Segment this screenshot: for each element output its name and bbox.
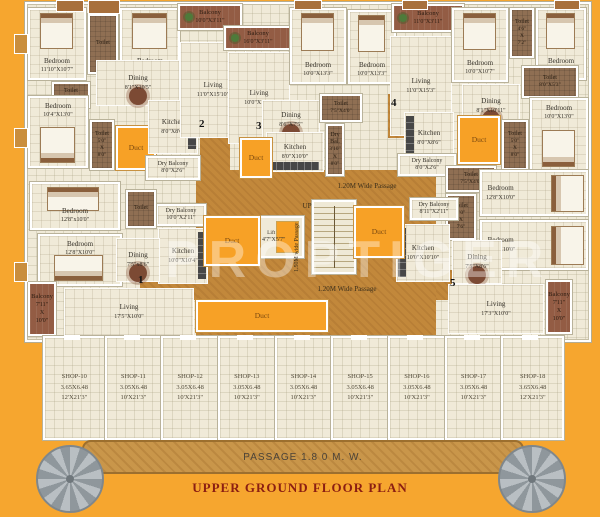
balcony-sw-label: Balcony7'11"X10'0" bbox=[31, 293, 53, 325]
bedroom-ne-3-label: Bedroom10'0"X13'0" bbox=[544, 104, 573, 121]
shop-size-metric: 3.05X6.48 bbox=[346, 383, 373, 393]
shop-size-imperial: 10'X21'3" bbox=[461, 393, 487, 403]
shop-label: SHOP-11 bbox=[121, 372, 146, 382]
duct-core-right: Duct bbox=[354, 206, 404, 258]
toilet-se-1-label: Toilet7'5"X4'0" bbox=[460, 172, 481, 186]
duct-ne: Duct bbox=[458, 116, 500, 164]
drybalcony-se: Dry Balcony8'11"X2'11" bbox=[410, 198, 458, 220]
toilet-ne-2: Toilet8'0"X5'3" bbox=[522, 66, 578, 98]
staircase bbox=[312, 200, 356, 274]
tree-icon bbox=[36, 445, 104, 513]
wall-stub bbox=[402, 0, 428, 10]
ac-ledge bbox=[14, 262, 28, 282]
toilet-ne-1-label: Toilet4'6"X7'2" bbox=[515, 19, 529, 47]
bedroom-se-1: Bedroom12'8"X10'0" bbox=[480, 170, 588, 216]
bedroom-sw-2-label: Bedroom12'8"X10'0" bbox=[65, 240, 94, 257]
shop-size-imperial: 10'X21'3" bbox=[404, 393, 430, 403]
toilet-ne-3-label: Toilet5'0"X8'0" bbox=[508, 131, 522, 159]
bedroom-ne-1: Bedroom10'0"X10'7" bbox=[452, 8, 508, 82]
bedroom-c-1: Bedroom10'0"X13'3" bbox=[290, 8, 346, 84]
dining-c-label: Dining8'6"X7'5" bbox=[279, 111, 302, 128]
shop-size-imperial: 10'X21'3" bbox=[120, 393, 146, 403]
kitchen-c-label: Kitchen8'0"X10'0" bbox=[282, 143, 308, 160]
shop-size-metric: 3.05X6.48 bbox=[233, 383, 260, 393]
toilet-ne-3: Toilet5'0"X8'0" bbox=[502, 120, 528, 170]
shop-label: SHOP-14 bbox=[291, 372, 316, 382]
shop-size-imperial: 10'X21'3" bbox=[291, 393, 317, 403]
kitchen-ne-label: Kitchen8'0"X8'6" bbox=[417, 129, 440, 146]
dining-nw-label: Dining8'1"X10'5" bbox=[125, 74, 151, 91]
bedroom-ne-3: Bedroom10'0"X13'0" bbox=[530, 98, 588, 172]
unit-marker-2: 2 bbox=[199, 118, 205, 130]
bedroom-se-1-label: Bedroom12'8"X10'0" bbox=[486, 184, 515, 201]
bed-icon bbox=[463, 13, 495, 50]
shop-size-metric: 3.05X6.48 bbox=[176, 383, 203, 393]
duct-core-left: Duct bbox=[204, 216, 260, 266]
kitchen-sw-label: Kitchen10'0"X10'4" bbox=[168, 247, 197, 264]
living-sw: Living17'5"X10'0" bbox=[64, 288, 194, 336]
bedroom-nw-3: Bedroom10'4"X13'0" bbox=[28, 96, 88, 168]
bedroom-c-2-label: Bedroom10'0"X13'3" bbox=[357, 61, 386, 78]
shop-cell-shop-15: SHOP-153.05X6.4810'X21'3" bbox=[333, 338, 387, 438]
toilet-c-1-label: Toilet7'5"X4'0" bbox=[330, 101, 351, 115]
balcony-top-1-label: Balcony10'0"X3'11" bbox=[195, 9, 224, 25]
bed-icon bbox=[551, 226, 584, 266]
floor-plan-canvas: Bedroom11'10"X10'7"ToiletBedroom10'0"X10… bbox=[0, 0, 600, 517]
front-passage-label: PASSAGE 1.8 0 M. W. bbox=[243, 452, 362, 463]
bedroom-nw-1-label: Bedroom11'10"X10'7" bbox=[41, 57, 73, 74]
shop-label: SHOP-17 bbox=[461, 372, 486, 382]
unit-marker-3: 3 bbox=[256, 120, 262, 132]
shop-cell-shop-17: SHOP-173.05X6.4810'X21'3" bbox=[447, 338, 501, 438]
kitchen-sw: Kitchen10'0"X10'4" bbox=[158, 228, 208, 284]
bed-icon bbox=[40, 13, 73, 49]
bedroom-c-1-label: Bedroom10'0"X13'3" bbox=[303, 61, 332, 78]
ac-ledge bbox=[14, 128, 28, 148]
unit-marker-1: 1 bbox=[138, 274, 144, 286]
bed-icon bbox=[132, 13, 166, 49]
bedroom-sw-1: Bedroom12'8"x10'0" bbox=[30, 182, 120, 230]
lift-label: Lift4'7"X5'7" bbox=[262, 230, 280, 244]
unit-marker-5: 5 bbox=[450, 277, 456, 289]
drybalcony-sw-label: Dry Balcony10'0"X2'11" bbox=[166, 208, 197, 222]
shop-cell-shop-11: SHOP-113.05X6.4810'X21'3" bbox=[107, 338, 161, 438]
shop-cell-shop-12: SHOP-123.05X6.4810'X21'3" bbox=[163, 338, 217, 438]
duct-core-right-label: Duct bbox=[372, 228, 387, 237]
drybalcony-ne-label: Dry Balcony8'0"X2'6" bbox=[412, 158, 443, 172]
wall-stub bbox=[294, 0, 322, 10]
bedroom-nw-3-label: Bedroom10'4"X13'0" bbox=[43, 102, 72, 119]
toilet-c-1: Toilet7'5"X4'0" bbox=[320, 94, 362, 122]
shop-size-imperial: 12'X21'3" bbox=[61, 393, 87, 403]
shop-size-metric: 3.05X6.48 bbox=[403, 383, 430, 393]
toilet-nw-1-label: Toilet bbox=[96, 40, 110, 47]
shop-label: SHOP-12 bbox=[177, 372, 202, 382]
duct-core-bottom-label: Duct bbox=[255, 312, 270, 321]
duct-nw-label: Duct bbox=[129, 144, 144, 153]
bed-icon bbox=[301, 13, 333, 51]
duct-c-label: Duct bbox=[249, 154, 264, 163]
shop-size-metric: 3.05X6.48 bbox=[460, 383, 487, 393]
kitchen-se-label: Kitchen10'0"X10'10" bbox=[407, 244, 439, 261]
shop-size-imperial: 10'X21'3" bbox=[177, 393, 203, 403]
shop-size-imperial: 12'X21'3" bbox=[520, 393, 546, 403]
drybalcony-nw: Dry Balcony8'0"X2'6" bbox=[146, 156, 200, 180]
bedroom-sw-1-label: Bedroom12'8"x10'0" bbox=[61, 207, 89, 224]
wall-stub bbox=[56, 0, 84, 12]
shop-size-imperial: 10'X21'3" bbox=[234, 393, 260, 403]
bed-icon bbox=[551, 175, 584, 211]
dining-se: Dining7'5"X8'6" bbox=[452, 240, 502, 284]
bedroom-sw-2: Bedroom12'8"X10'0" bbox=[38, 234, 122, 286]
toilet-ne-1: Toilet4'6"X7'2" bbox=[510, 8, 534, 58]
ac-ledge bbox=[14, 34, 28, 54]
wall-stub bbox=[88, 0, 120, 14]
duct-c: Duct bbox=[240, 138, 272, 178]
drybal-c: Dry Bal.3'10"X8'0" bbox=[326, 124, 344, 176]
drybalcony-nw-label: Dry Balcony8'0"X2'6" bbox=[158, 161, 189, 175]
balcony-top-2: Balcony16'0"X3'11" bbox=[224, 26, 292, 50]
wall-stub bbox=[554, 0, 580, 10]
living-sw-label: Living17'5"X10'0" bbox=[114, 303, 143, 320]
balcony-top-2-label: Balcony16'0"X3'11" bbox=[243, 30, 272, 46]
passage-label: 1.20M Wide Passage bbox=[306, 183, 428, 195]
passage-label: 1.50M wide Passage bbox=[294, 210, 306, 284]
shop-label: SHOP-16 bbox=[404, 372, 429, 382]
toilet-nw-3: Toilet5'0"X8'0" bbox=[90, 120, 114, 170]
balcony-sw: Balcony7'11"X10'0" bbox=[28, 282, 56, 336]
front-passage: PASSAGE 1.8 0 M. W. bbox=[82, 440, 524, 474]
shop-cell-shop-10: SHOP-103.65X6.4812'X21'3" bbox=[45, 338, 104, 438]
bed-icon bbox=[54, 255, 102, 281]
drybal-c-label: Dry Bal.3'10"X8'0" bbox=[328, 132, 342, 167]
toilet-sw-1-label: Toilet bbox=[134, 205, 148, 212]
dining-ne-label: Dining8'1"X10'11" bbox=[476, 97, 505, 114]
shop-size-metric: 3.65X6.48 bbox=[61, 383, 88, 393]
toilet-ne-2-label: Toilet8'0"X5'3" bbox=[539, 75, 560, 89]
duct-core-bottom: Duct bbox=[196, 300, 328, 332]
kitchen-counter-icon bbox=[270, 162, 318, 170]
shop-size-metric: 3.65X6.48 bbox=[519, 383, 546, 393]
kitchen-se: Kitchen10'0"X10'10" bbox=[396, 224, 450, 282]
shop-label: SHOP-13 bbox=[234, 372, 259, 382]
balcony-se: Balcony7'11"X10'0" bbox=[546, 280, 572, 334]
balcony-se-label: Balcony7'11"X10'0" bbox=[548, 291, 570, 323]
bed-icon bbox=[546, 13, 575, 49]
toilet-sw-1: Toilet bbox=[126, 190, 156, 228]
living-nw-label: Living11'0"X15'10" bbox=[197, 81, 229, 98]
drybalcony-sw: Dry Balcony10'0"X2'11" bbox=[156, 204, 206, 226]
shop-size-imperial: 10'X21'3" bbox=[347, 393, 373, 403]
living-se: Living17'3"X10'0" bbox=[448, 284, 544, 334]
bedroom-ne-1-label: Bedroom10'0"X10'7" bbox=[465, 59, 494, 76]
tree-icon bbox=[498, 445, 566, 513]
dining-se-label: Dining7'5"X8'6" bbox=[465, 253, 488, 270]
shop-size-metric: 3.05X6.48 bbox=[120, 383, 147, 393]
kitchen-c: Kitchen8'0"X10'0" bbox=[266, 132, 324, 172]
kitchen-counter-icon bbox=[406, 116, 414, 159]
shop-label: SHOP-15 bbox=[348, 372, 373, 382]
shop-label: SHOP-18 bbox=[520, 372, 545, 382]
dining-sw-label: Dining7'5"x8'6" bbox=[127, 251, 149, 268]
drybalcony-se-label: Dry Balcony8'11"X2'11" bbox=[419, 202, 450, 216]
duct-core-left-label: Duct bbox=[225, 237, 240, 246]
bed-icon bbox=[542, 130, 575, 167]
shop-label: SHOP-10 bbox=[62, 372, 87, 382]
living-se-label: Living17'3"X10'0" bbox=[481, 300, 510, 317]
bed-icon bbox=[40, 127, 74, 163]
shop-cell-shop-14: SHOP-143.05X6.4810'X21'3" bbox=[277, 338, 331, 438]
shop-cell-shop-13: SHOP-133.05X6.4810'X21'3" bbox=[220, 338, 274, 438]
living-ne-label: Living11'0"X15'3" bbox=[406, 77, 435, 94]
duct-ne-label: Duct bbox=[472, 136, 487, 145]
shops-row: SHOP-103.65X6.4812'X21'3"SHOP-113.05X6.4… bbox=[45, 338, 562, 438]
shop-size-metric: 3.05X6.48 bbox=[290, 383, 317, 393]
shop-cell-shop-18: SHOP-183.65X6.4812'X21'3" bbox=[503, 338, 562, 438]
bed-icon bbox=[358, 15, 386, 52]
bedroom-nw-1: Bedroom11'10"X10'7" bbox=[28, 8, 86, 80]
balcony-ne-label: Balcony11'0"X3'11" bbox=[414, 10, 443, 26]
bedroom-c-2: Bedroom10'0"X13'3" bbox=[348, 10, 396, 84]
toilet-nw-3-label: Toilet5'0"X8'0" bbox=[95, 131, 109, 159]
unit-marker-4: 4 bbox=[391, 97, 397, 109]
passage-label: 1.20M Wide Passage bbox=[288, 286, 406, 298]
shop-cell-shop-16: SHOP-163.05X6.4810'X21'3" bbox=[390, 338, 444, 438]
